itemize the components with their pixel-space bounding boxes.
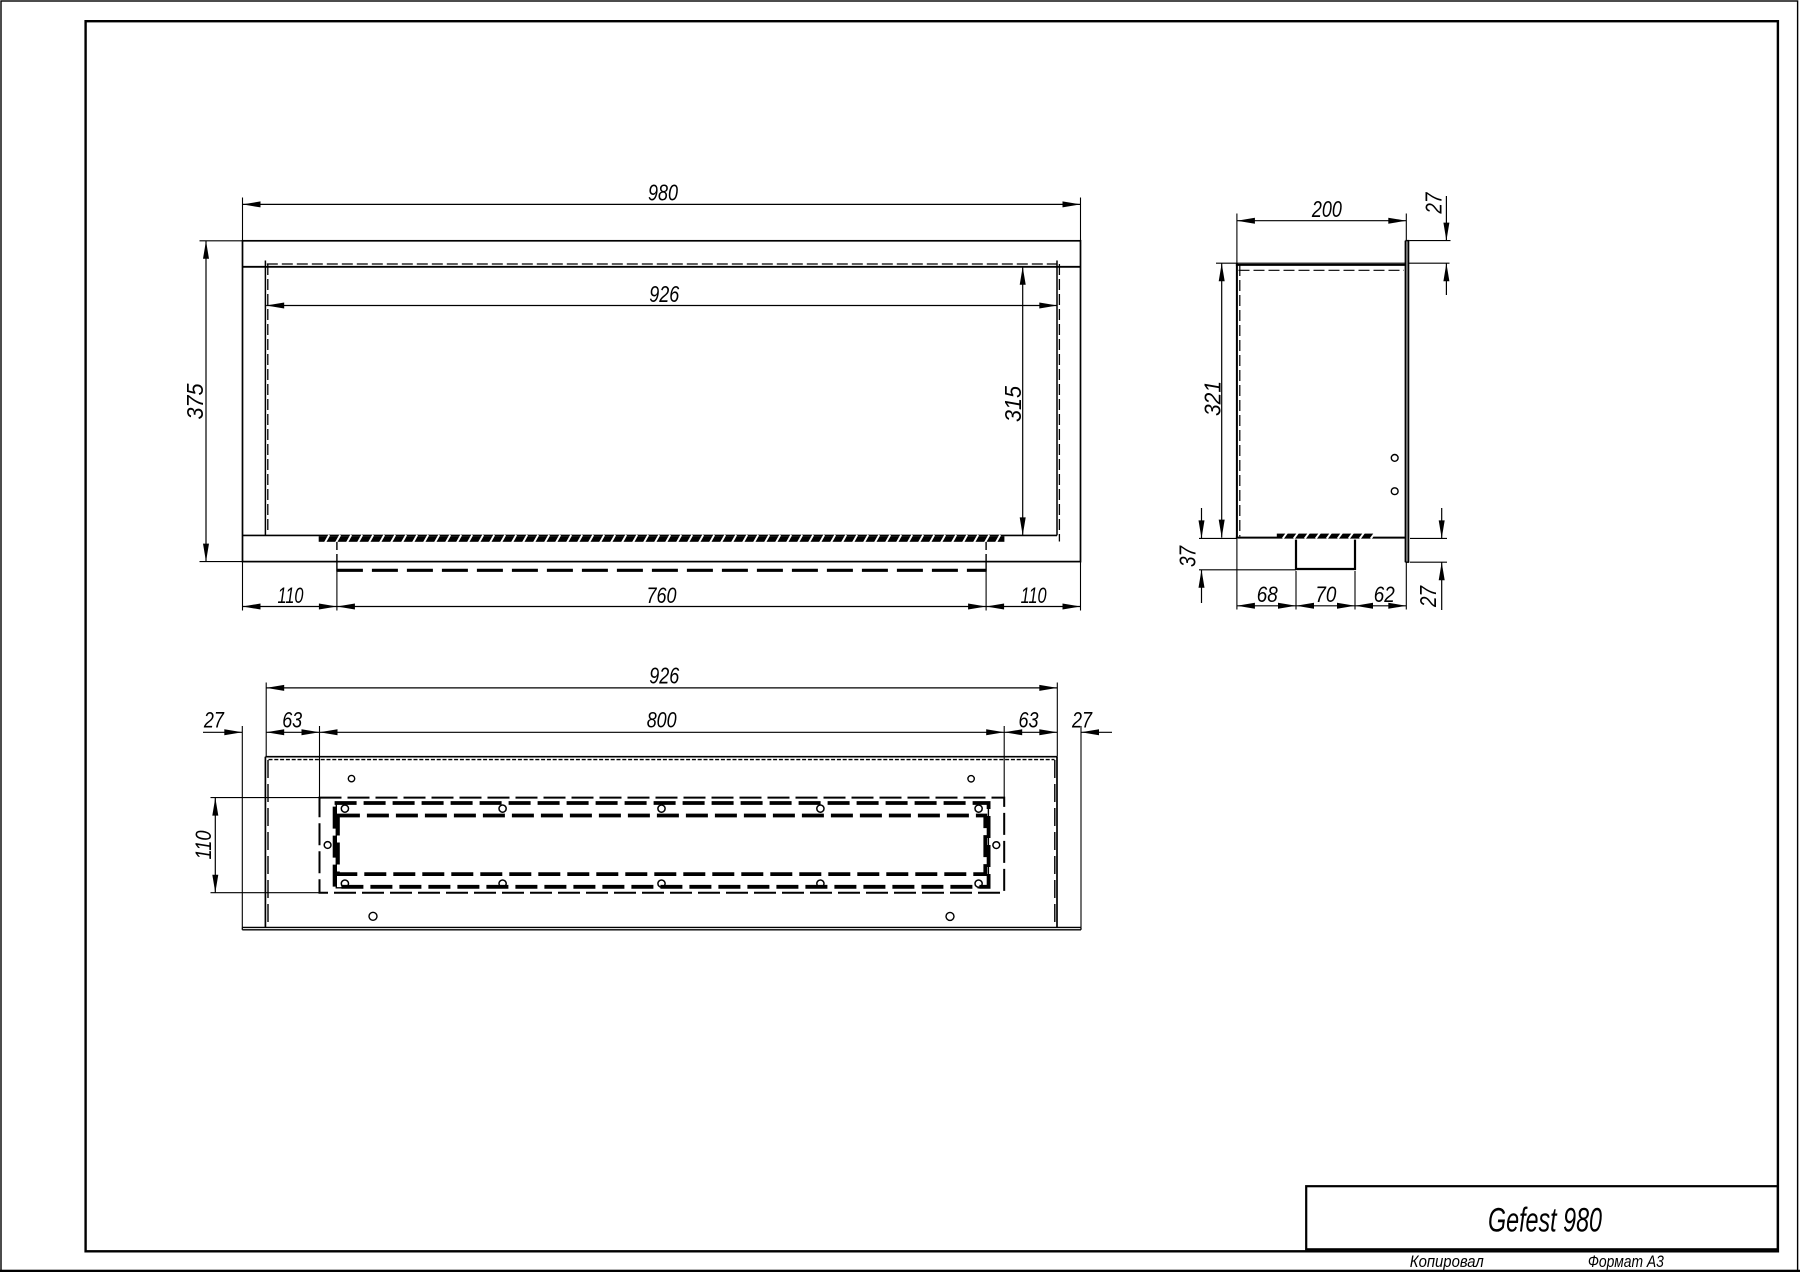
svg-text:200: 200 (1311, 196, 1342, 222)
svg-text:63: 63 (1019, 707, 1040, 732)
svg-text:Gefest 980: Gefest 980 (1488, 1202, 1602, 1240)
svg-text:321: 321 (1200, 381, 1226, 416)
svg-text:27: 27 (1071, 707, 1092, 732)
svg-text:Копировал: Копировал (1410, 1252, 1485, 1271)
svg-text:926: 926 (649, 663, 680, 689)
svg-text:68: 68 (1257, 582, 1279, 607)
svg-text:37: 37 (1175, 545, 1201, 567)
svg-text:63: 63 (282, 707, 303, 732)
svg-text:110: 110 (191, 830, 216, 860)
svg-text:760: 760 (647, 583, 678, 608)
svg-text:27: 27 (1421, 192, 1447, 215)
svg-text:980: 980 (648, 180, 678, 206)
svg-text:Формат А3: Формат А3 (1588, 1252, 1665, 1271)
svg-text:62: 62 (1374, 582, 1395, 607)
svg-text:110: 110 (278, 583, 305, 608)
svg-text:70: 70 (1315, 582, 1337, 607)
svg-text:27: 27 (203, 707, 224, 732)
svg-text:27: 27 (1415, 585, 1441, 608)
svg-text:110: 110 (1021, 583, 1048, 608)
svg-text:926: 926 (649, 281, 680, 307)
svg-text:375: 375 (182, 383, 208, 420)
svg-text:315: 315 (1000, 385, 1026, 422)
svg-text:800: 800 (647, 707, 678, 732)
